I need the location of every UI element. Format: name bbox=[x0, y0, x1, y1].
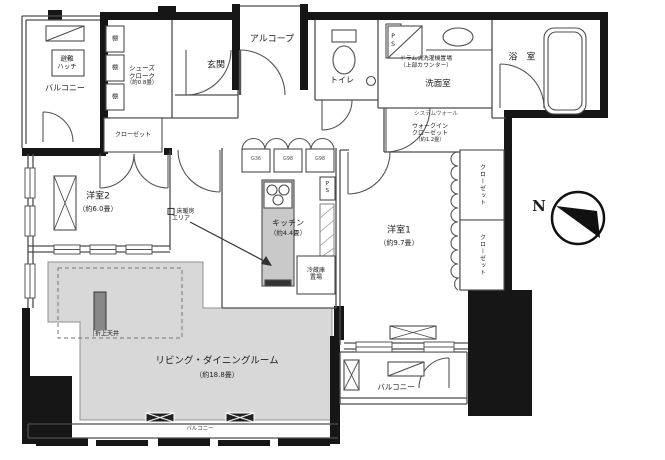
toilet-tank bbox=[332, 30, 356, 42]
hand-basin bbox=[367, 77, 376, 86]
floor-heating-label: 床暖房 エリア bbox=[167, 208, 194, 222]
floor-plan-drawing bbox=[0, 0, 665, 460]
living-dining-label: リビング・ダイニングルーム bbox=[155, 355, 278, 366]
washroom-label: 洗面室 bbox=[425, 79, 451, 89]
shoes-cloak-label: シューズ クローク （約0.8畳） bbox=[127, 65, 158, 87]
toilet-bowl bbox=[333, 46, 355, 74]
legend-square-icon bbox=[167, 208, 174, 215]
cabinet-g1-label: G36 bbox=[251, 157, 261, 163]
pipe-space-1-label: PS bbox=[389, 33, 396, 49]
fridge-space-label: 冷蔵庫 置場 bbox=[307, 267, 325, 281]
kitchen-size: （約4.4畳） bbox=[270, 230, 306, 238]
bathroom-label: 浴 室 bbox=[508, 53, 535, 64]
compass-n-label: N bbox=[532, 198, 546, 216]
cabinet-g2-label: G98 bbox=[283, 157, 293, 163]
shelf-label-2: 棚 bbox=[112, 64, 118, 71]
bedroom1-label: 洋室1 bbox=[387, 226, 411, 237]
closet-right-2-label: クローゼット bbox=[478, 234, 485, 276]
balcony-bottom-right-label: バルコニー bbox=[377, 384, 414, 393]
pipe-space-2-label: PS bbox=[324, 181, 330, 195]
cabinet-g3-label: G98 bbox=[315, 157, 325, 163]
walk-in-closet-label: ウォークイン クローゼット （約1.2畳） bbox=[412, 123, 448, 143]
floor-heating-arrow bbox=[190, 222, 272, 266]
bathtub-inner bbox=[548, 32, 582, 110]
system-wall-note: システムウォール bbox=[414, 111, 458, 117]
stove-burner-3 bbox=[273, 195, 283, 205]
closet-right-1-label: クローゼット bbox=[478, 164, 485, 206]
pillar bbox=[94, 292, 106, 336]
stove-burner-2 bbox=[279, 185, 289, 195]
alcove-label: アルコープ bbox=[250, 35, 294, 46]
kitchen-sink bbox=[265, 280, 291, 286]
shelf-label-1: 棚 bbox=[112, 35, 118, 42]
laundry-label: ドラム式洗濯機置場 （上部カウンター） bbox=[400, 56, 452, 70]
bedroom1-size: （約9.7畳） bbox=[379, 239, 418, 247]
raised-ceiling-label: 折上天井 bbox=[94, 330, 120, 337]
evac-hatch-label: 避難 ハッチ bbox=[57, 55, 77, 70]
entrance-label: 玄関 bbox=[207, 61, 225, 72]
compass bbox=[552, 192, 604, 244]
kitchen-label: キッチン bbox=[272, 218, 304, 227]
living-dining-size: （約18.8畳） bbox=[195, 371, 239, 379]
bedroom2-label: 洋室2 bbox=[86, 192, 110, 203]
hall-closet-label: クローゼット bbox=[115, 131, 151, 138]
shelf-label-3: 棚 bbox=[112, 93, 118, 100]
floor-plan: バルコニー 避難 ハッチ シューズ クローク （約0.8畳） 棚 棚 棚 クロー… bbox=[0, 0, 665, 460]
stove-burner-1 bbox=[267, 185, 277, 195]
balcony-bottom-label: バルコニー bbox=[186, 426, 213, 432]
balcony-top-left-label: バルコニー bbox=[45, 83, 85, 92]
vanity-sink bbox=[443, 28, 473, 46]
bedroom2-size: （約6.0畳） bbox=[78, 205, 117, 213]
toilet-label: トイレ bbox=[330, 75, 354, 84]
